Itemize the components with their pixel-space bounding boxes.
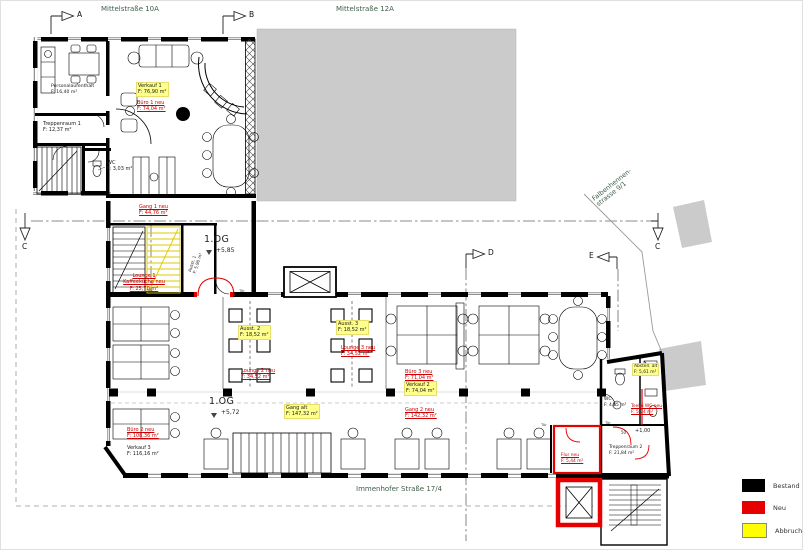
room-label-buero2: Büro 2 neu F: 108,36 m² xyxy=(127,427,159,440)
street-label-immenhofer: Immenhofer Straße 17/4 xyxy=(356,485,442,493)
section-marker-d: D xyxy=(488,248,494,257)
room-area: F: 5,44 m² xyxy=(561,459,583,465)
elevator-new xyxy=(558,480,600,525)
section-marker-a: A xyxy=(77,10,82,19)
room-label-personalaufenthalt: Personalaufenthalt F: 16,40 m² xyxy=(51,84,94,95)
walls-existing-top-block xyxy=(33,37,255,196)
room-area: F: 12,37 m² xyxy=(43,127,81,133)
level-og585-name: 1.OG xyxy=(204,234,229,245)
room-label-lounge3: Lounge 3 neu F: 34,52 m² xyxy=(341,345,375,358)
room-area: F: 76,90 m² xyxy=(138,89,167,95)
room-area: F: 5,61 m² xyxy=(634,370,657,376)
room-label-buero1: Büro 1 neu F: 74,04 m² xyxy=(137,100,166,113)
elevator-existing xyxy=(284,267,336,297)
room-area: F: 5,74 m² xyxy=(631,410,662,416)
section-marker-c-right: C xyxy=(655,242,660,251)
room-label-wc2: WC F: 4,45 m² xyxy=(604,397,626,408)
walls-existing-main-wing xyxy=(105,292,669,479)
legend-swatch-neu xyxy=(742,501,765,514)
room-area: F: 147,32 m² xyxy=(286,411,318,417)
street-label-mittelstrasse-10a: Mittelstraße 10A xyxy=(101,5,159,13)
room-label-wc1: WC F: 3,03 m² xyxy=(107,160,132,173)
room-label-verkauf2: Verkauf 2 F: 74,04 m² xyxy=(405,382,436,395)
room-label-ausst3: Ausst. 3 F: 18,52 m² xyxy=(337,321,368,334)
level-og572-value: +5,72 xyxy=(221,409,239,416)
room-area: F: 142,32 m² xyxy=(405,413,437,419)
room-label-abstell: Abstell. alt F: 5,61 m² xyxy=(633,364,658,375)
room-label-teekue: Teekü WC neu F: 5,74 m² xyxy=(631,404,662,415)
room-label-treppenraum1: Treppenraum 1 F: 12,37 m² xyxy=(43,121,81,134)
furniture-main-wing xyxy=(113,297,657,474)
room-area: F: 74,04 m² xyxy=(406,388,435,394)
door-label-4: Tür xyxy=(605,420,611,425)
room-label-gang1: Gang 1 neu F: 44,76 m² xyxy=(139,204,168,217)
section-marker-b: B xyxy=(249,10,254,19)
room-area: F: 71,04 m² xyxy=(405,375,434,381)
door-label-2: Tür xyxy=(239,288,245,293)
room-label-gang-alt: Gang alt F: 147,32 m² xyxy=(285,405,319,418)
legend-swatch-bestand xyxy=(742,479,765,492)
room-name: Personalaufenthalt xyxy=(51,84,94,90)
room-label-gang2: Gang 2 neu F: 142,32 m² xyxy=(405,407,437,420)
room-label-lounge2: Lounge 2 neu F: 34,52 m² xyxy=(241,368,275,381)
room-area: F: 116,16 m² xyxy=(127,451,159,457)
room-label-ausst2: Ausst. 2 F: 18,52 m² xyxy=(239,326,270,339)
legend: Bestand Neu Abbruch xyxy=(742,479,800,547)
room-label-lounge1: Lounge 1 Kaffeeküche neu F: 25,70 m² xyxy=(121,273,167,292)
room-label-verkauf1: Verkauf 1 F: 76,90 m² xyxy=(137,83,168,96)
room-label-buero3: Büro 3 neu F: 71,04 m² xyxy=(405,369,434,382)
neighbor-building-area xyxy=(257,29,712,391)
street-label-mittelstrasse-12a: Mittelstraße 12A xyxy=(336,5,394,13)
room-name: Abstell. alt xyxy=(634,364,657,370)
bottom-desk-row xyxy=(204,428,551,473)
level-og585-value: +5,85 xyxy=(216,247,234,254)
conference-table xyxy=(549,297,607,380)
room-name: Treppenraum 2 xyxy=(609,445,642,451)
level-og572-arrow-icon xyxy=(211,413,217,421)
section-marker-c-left: C xyxy=(22,242,27,251)
room-label-verkauf3: Verkauf 3 F: 116,16 m² xyxy=(127,445,159,458)
room-area: F: 74,04 m² xyxy=(137,106,166,112)
room-area: F: 16,40 m² xyxy=(51,90,94,96)
legend-label-abbruch: Abbruch xyxy=(775,527,802,535)
legend-label-bestand: Bestand xyxy=(773,482,800,490)
leader-lines xyxy=(98,167,105,170)
room-area: F: 34,52 m² xyxy=(241,374,275,380)
level-og585-arrow-icon xyxy=(206,250,212,258)
room-area: F: 21,84 m² xyxy=(609,451,642,457)
legend-row-neu: Neu xyxy=(742,501,800,514)
door-width-label: 50 xyxy=(621,430,626,435)
floor-plan-canvas: Mittelstraße 10A Mittelstraße 12A Immenh… xyxy=(0,0,803,550)
room-area: F: 18,52 m² xyxy=(338,327,367,333)
legend-label-neu: Neu xyxy=(773,504,786,512)
room-label-treppenraum2: Treppenraum 2 F: 21,84 m² xyxy=(609,445,642,456)
room-area: F: 25,70 m² xyxy=(121,286,167,292)
room-area: F: 44,76 m² xyxy=(139,210,168,216)
room-name: Lounge 1 Kaffeeküche neu xyxy=(121,273,167,286)
room-label-flur-neu: Flur neu F: 5,44 m² xyxy=(561,453,583,464)
room-area: F: 3,03 m² xyxy=(107,166,132,172)
desk-cluster-left xyxy=(113,307,180,439)
legend-row-abbruch: Abbruch xyxy=(742,523,800,538)
room-area: F: 108,36 m² xyxy=(127,433,159,439)
section-marker-e: E xyxy=(589,251,594,260)
room-area: F: 18,52 m² xyxy=(240,332,269,338)
legend-row-bestand: Bestand xyxy=(742,479,800,492)
room-name: Teekü WC neu xyxy=(631,404,662,410)
legend-swatch-abbruch xyxy=(742,523,767,538)
level-entry-value: +1,00 xyxy=(635,428,650,434)
room-area: F: 34,52 m² xyxy=(341,351,375,357)
level-og572-name: 1.OG xyxy=(209,396,234,407)
room-area: F: 4,45 m² xyxy=(604,403,626,409)
desk-cluster-office-2 xyxy=(468,306,550,364)
door-label-3: Tür xyxy=(541,422,547,427)
